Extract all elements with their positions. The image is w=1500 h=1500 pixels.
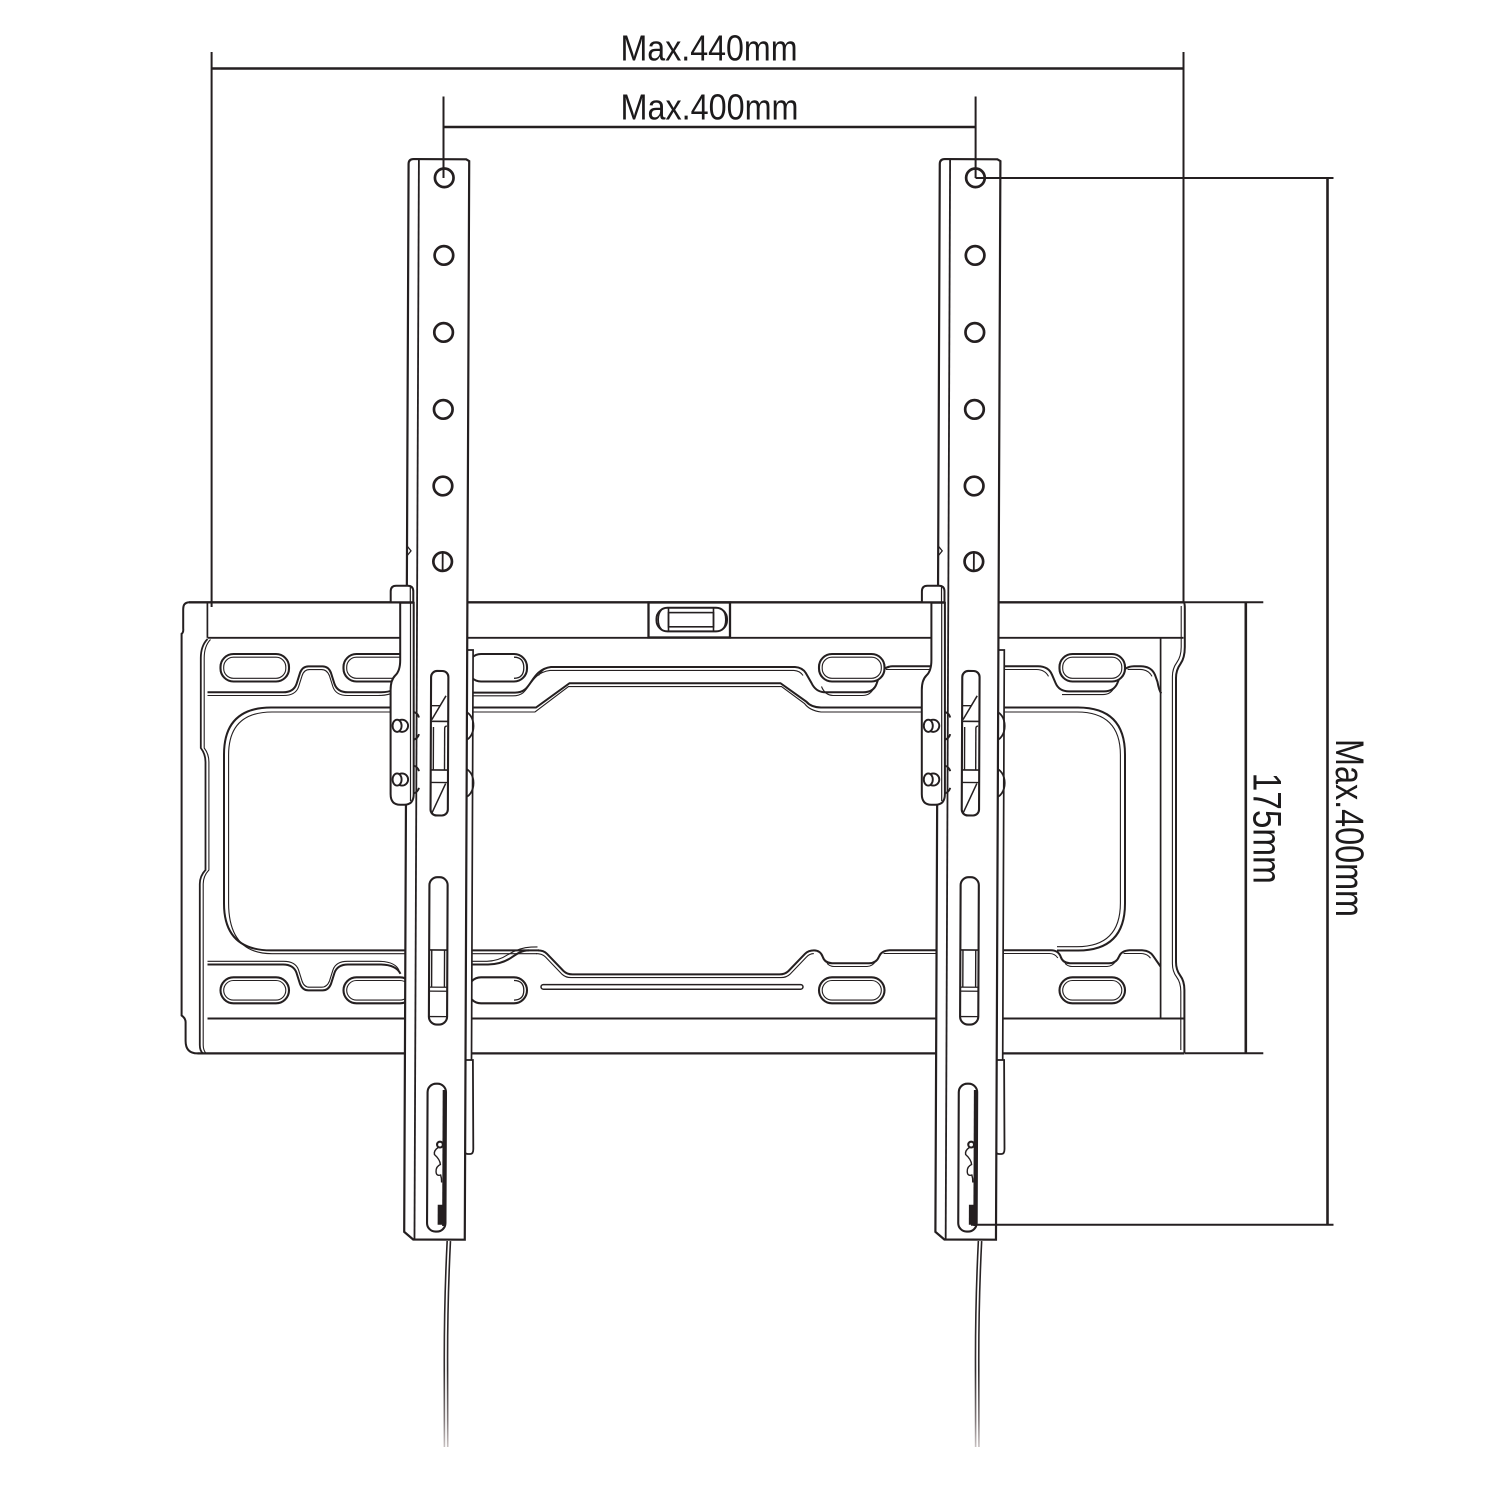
svg-text:175mm: 175mm	[1245, 773, 1289, 884]
svg-text:Max.440mm: Max.440mm	[621, 27, 798, 68]
svg-text:Max.400mm: Max.400mm	[621, 87, 799, 128]
svg-text:Max.400mm: Max.400mm	[1327, 739, 1371, 917]
